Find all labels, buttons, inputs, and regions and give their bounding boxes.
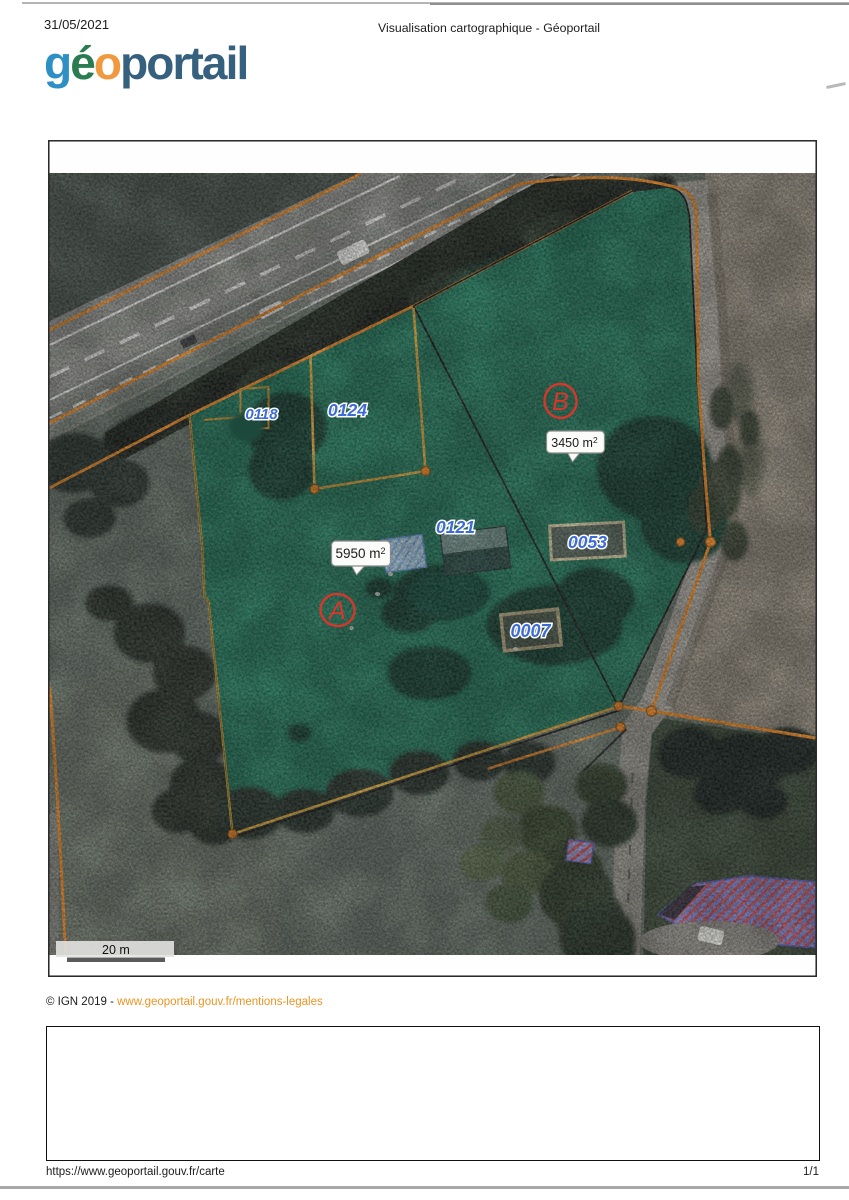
svg-text:5950 m2: 5950 m2 <box>335 546 385 561</box>
svg-text:0007: 0007 <box>510 621 551 641</box>
svg-text:A: A <box>327 597 346 625</box>
svg-text:20 m: 20 m <box>102 943 130 957</box>
svg-text:0118: 0118 <box>245 406 278 423</box>
svg-text:3450 m2: 3450 m2 <box>551 435 598 450</box>
svg-text:0053: 0053 <box>568 532 607 552</box>
svg-text:0124: 0124 <box>328 400 367 420</box>
svg-text:B: B <box>552 388 569 416</box>
svg-text:0121: 0121 <box>436 517 475 537</box>
